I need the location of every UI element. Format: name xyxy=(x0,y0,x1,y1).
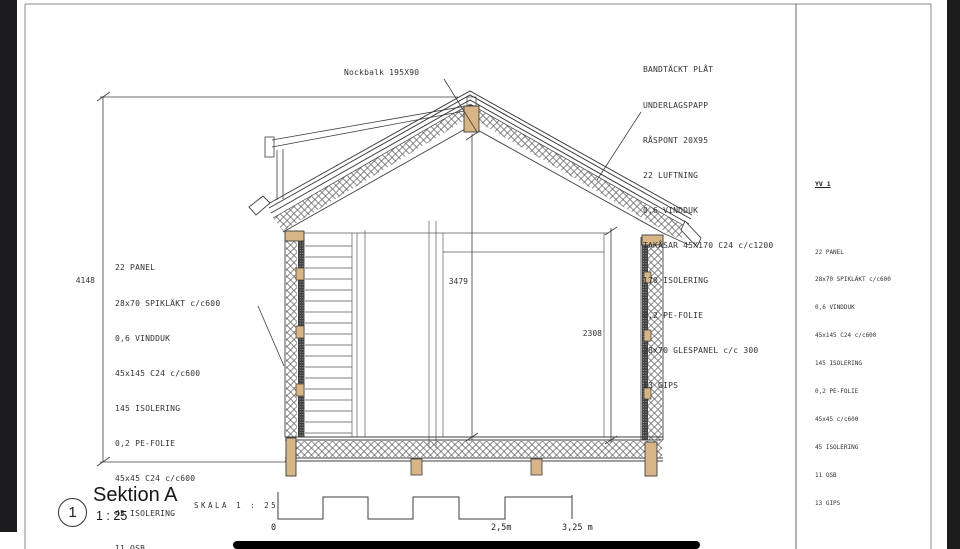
legend-line: 145 ISOLERING xyxy=(815,359,938,368)
legend-line: 11 OSB xyxy=(815,471,938,480)
legend-line: 22 PANEL xyxy=(815,248,938,257)
legend-yv1-title: YV 1 xyxy=(815,180,938,188)
note-line: 22 LUFTNING xyxy=(643,170,773,182)
dim-wall-height: 2308 xyxy=(562,329,602,338)
note-line: 28x70 GLESPANEL c/c 300 xyxy=(643,345,773,357)
floor-post xyxy=(531,459,542,475)
note-line: 0,6 VINDDUK xyxy=(643,205,773,217)
scale-tick-3-25: 3,25 m xyxy=(562,523,593,533)
note-line: UNDERLAGSPAPP xyxy=(643,100,773,112)
note-line: 45x45 C24 c/c600 xyxy=(115,473,220,485)
nockbalk-label: Nockbalk 195X90 xyxy=(344,67,419,79)
legend-line: 0,2 PE-FOLIE xyxy=(815,387,938,396)
note-line: 0,6 VINDDUK xyxy=(115,333,220,345)
note-line: BANDTÄCKT PLÅT xyxy=(643,64,773,76)
legend-line: 0,6 VINDDUK xyxy=(815,303,938,312)
note-line: 22 PANEL xyxy=(115,262,220,274)
floor-post xyxy=(411,459,422,475)
view-title: Sektion A xyxy=(93,484,178,507)
legend-line: 45x45 c/c600 xyxy=(815,415,938,424)
note-line: 170 ISOLERING xyxy=(643,275,773,287)
note-line: 0,2 PE-FOLIE xyxy=(643,310,773,322)
dim-total-height: 4148 xyxy=(45,276,95,285)
viewer-left-edge xyxy=(0,0,17,532)
scale-tick-2-5: 2,5m xyxy=(491,523,511,533)
left-fascia xyxy=(249,196,270,215)
note-line: 13 GIPS xyxy=(643,380,773,392)
legend-line: 45x145 C24 c/c600 xyxy=(815,331,938,340)
note-line: RÅSPONT 20X95 xyxy=(643,135,773,147)
scale-bar xyxy=(278,492,572,519)
note-line: 45x145 C24 c/c600 xyxy=(115,368,220,380)
viewer-right-edge xyxy=(947,0,960,549)
note-line: TAKÅSAR 45X170 C24 c/c1200 xyxy=(643,240,773,252)
legend-yv1-list: 22 PANEL 28x70 SPIKLÄKT c/c600 0,6 VINDD… xyxy=(815,229,938,527)
ridge-beam xyxy=(464,106,479,132)
dim-ridge-height: 3479 xyxy=(430,277,468,286)
drawing-viewer: BANDTÄCKT PLÅT UNDERLAGSPAPP RÅSPONT 20X… xyxy=(0,0,960,549)
view-number-bubble: 1 xyxy=(58,498,87,527)
legend-line: 45 ISOLERING xyxy=(815,443,938,452)
view-number: 1 xyxy=(68,504,76,521)
note-line: 28x70 SPIKLÄKT c/c600 xyxy=(115,298,220,310)
left-wall-section xyxy=(285,231,304,437)
legend-line: 28x70 SPIKLÄKT c/c600 xyxy=(815,275,938,284)
note-line: 0,2 PE-FOLIE xyxy=(115,438,220,450)
legend-panel: YV 1 22 PANEL 28x70 SPIKLÄKT c/c600 0,6 … xyxy=(815,142,938,549)
note-line: 145 ISOLERING xyxy=(115,403,220,415)
scale-tick-0: 0 xyxy=(271,523,276,533)
view-scale: 1 : 25 xyxy=(96,509,127,523)
scale-bar-label: SKALA 1 : 25 xyxy=(194,501,278,510)
note-line: 11 OSB xyxy=(115,543,220,549)
interior-ladder xyxy=(305,246,352,433)
roof-buildup-note: BANDTÄCKT PLÅT UNDERLAGSPAPP RÅSPONT 20X… xyxy=(643,41,773,416)
roof-section xyxy=(249,91,701,247)
legend-line: 13 GIPS xyxy=(815,499,938,508)
horizontal-scrollbar-thumb[interactable] xyxy=(233,541,700,549)
